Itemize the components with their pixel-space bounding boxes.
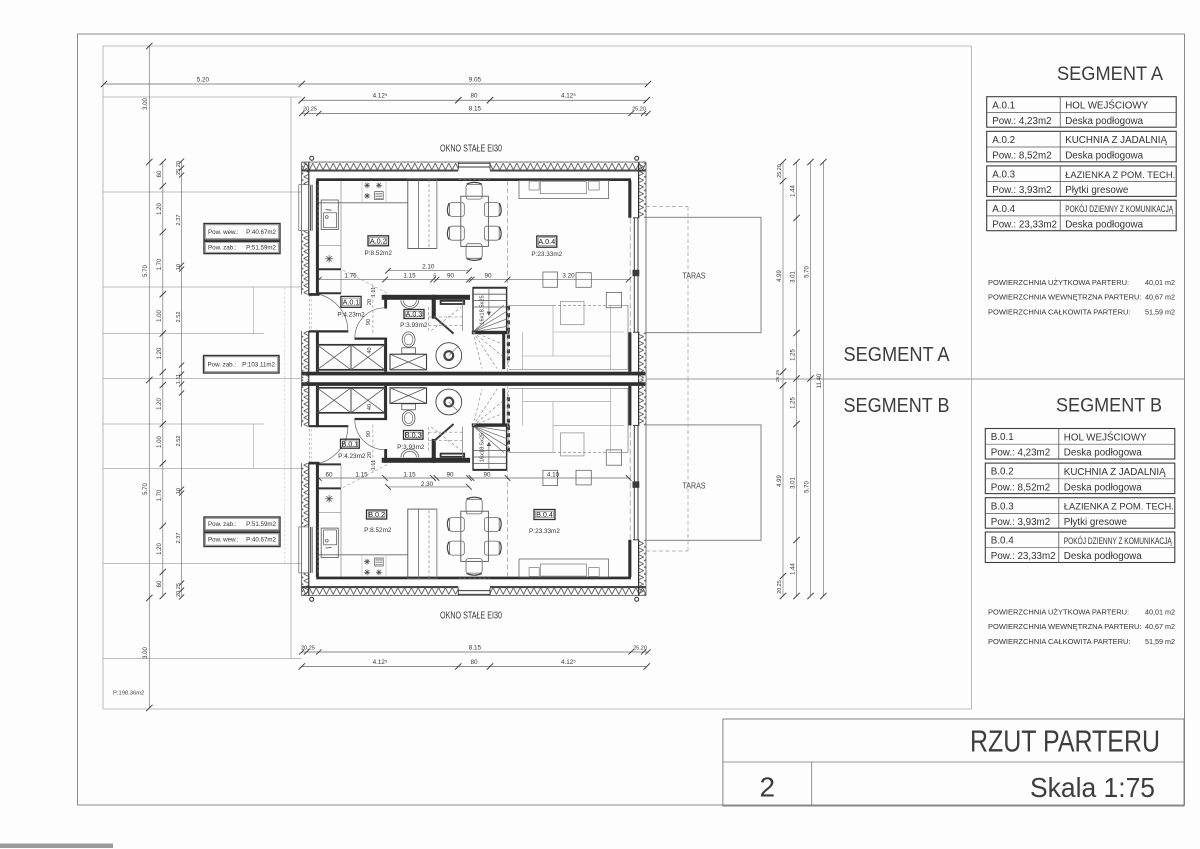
svg-text:40,01 m2: 40,01 m2: [1145, 608, 1175, 617]
svg-text:3.20: 3.20: [562, 272, 575, 279]
svg-text:20,25: 20,25: [303, 106, 317, 112]
svg-text:B.0.3: B.0.3: [991, 501, 1014, 512]
svg-text:ŁAZIENKA Z POM. TECH.: ŁAZIENKA Z POM. TECH.: [1065, 170, 1175, 180]
svg-text:5.70: 5.70: [805, 481, 811, 493]
svg-text:1.70: 1.70: [157, 258, 163, 270]
svg-text:16x18.5x25: 16x18.5x25: [480, 295, 486, 324]
svg-text:1.44: 1.44: [791, 563, 797, 575]
svg-text:B.0.4: B.0.4: [991, 536, 1014, 547]
svg-text:3.00: 3.00: [143, 98, 149, 110]
svg-text:P:51.59m2: P:51.59m2: [246, 521, 276, 528]
svg-text:1.11: 1.11: [176, 374, 182, 384]
svg-text:1.75: 1.75: [344, 272, 357, 279]
svg-text:90: 90: [447, 272, 455, 279]
svg-text:2.10: 2.10: [422, 264, 435, 271]
svg-text:OKNO STAŁE EI30: OKNO STAŁE EI30: [440, 610, 502, 621]
svg-text:51,59 m2: 51,59 m2: [1145, 637, 1175, 646]
svg-text:25,20: 25,20: [777, 164, 783, 178]
svg-text:20,25: 20,25: [301, 645, 315, 651]
svg-text:4.12⁵: 4.12⁵: [373, 93, 388, 100]
svg-text:5.70: 5.70: [143, 483, 149, 495]
svg-text:3.01: 3.01: [791, 477, 797, 489]
svg-text:Deska podłogowa: Deska podłogowa: [1065, 151, 1143, 162]
svg-text:90: 90: [446, 472, 454, 479]
svg-text:Deska podłogowa: Deska podłogowa: [1065, 219, 1143, 230]
svg-text:P:4.23m2: P:4.23m2: [337, 311, 365, 318]
svg-text:KUCHNIA Z JADALNIĄ: KUCHNIA Z JADALNIĄ: [1065, 135, 1167, 146]
svg-text:1.20: 1.20: [157, 347, 163, 359]
svg-text:A.0.1: A.0.1: [992, 100, 1015, 111]
svg-text:1.20: 1.20: [157, 203, 163, 215]
svg-text:P:51.59m2: P:51.59m2: [246, 245, 276, 252]
svg-text:40,67 m2: 40,67 m2: [1145, 622, 1175, 631]
svg-text:2: 2: [760, 772, 776, 803]
svg-text:P:23.33m2: P:23.33m2: [531, 251, 562, 258]
svg-text:Płytki gresowe: Płytki gresowe: [1065, 185, 1129, 196]
svg-text:51,59 m2: 51,59 m2: [1145, 307, 1175, 316]
svg-text:HOL WEJŚCIOWY: HOL WEJŚCIOWY: [1064, 431, 1147, 443]
svg-text:3.00: 3.00: [143, 647, 149, 659]
svg-text:25,20: 25,20: [176, 161, 182, 175]
svg-text:A.0.4: A.0.4: [538, 237, 555, 246]
svg-text:A.0.3: A.0.3: [992, 170, 1015, 181]
svg-text:B.0.4: B.0.4: [536, 510, 553, 519]
svg-text:TARAS: TARAS: [683, 482, 706, 491]
svg-text:2.37: 2.37: [176, 215, 182, 226]
svg-text:B.0.3: B.0.3: [405, 430, 422, 439]
svg-text:11.40: 11.40: [817, 373, 823, 388]
svg-text:Pow.: 8,52m2: Pow.: 8,52m2: [992, 151, 1051, 162]
svg-text:4.99: 4.99: [777, 475, 783, 487]
svg-text:P:3.93m2: P:3.93m2: [397, 444, 425, 451]
svg-text:9.05: 9.05: [469, 76, 482, 83]
svg-text:TARAS: TARAS: [683, 272, 706, 281]
svg-text:4.12⁵: 4.12⁵: [561, 93, 576, 100]
svg-text:P:103.11m2: P:103.11m2: [242, 361, 275, 368]
svg-text:Skala 1:75: Skala 1:75: [1030, 772, 1155, 803]
svg-text:25,25: 25,25: [775, 370, 781, 382]
svg-text:1.15: 1.15: [403, 272, 416, 279]
svg-text:60: 60: [157, 170, 163, 177]
svg-text:A.0.2: A.0.2: [370, 236, 387, 245]
svg-text:Pow.: 4,23m2: Pow.: 4,23m2: [991, 448, 1050, 459]
svg-text:P:198.36m2: P:198.36m2: [113, 691, 144, 697]
svg-text:POWIERZCHNIA CAŁKOWITA PARTERU: POWIERZCHNIA CAŁKOWITA PARTERU:: [988, 307, 1131, 316]
svg-text:Pow.: 8,52m2: Pow.: 8,52m2: [991, 482, 1050, 493]
svg-text:16x18.5x25: 16x18.5x25: [480, 433, 486, 462]
svg-text:2.30: 2.30: [421, 481, 434, 488]
svg-text:P:40.67m2: P:40.67m2: [246, 537, 276, 544]
svg-text:90: 90: [366, 431, 372, 437]
svg-text:OKNO STAŁE EI30: OKNO STAŁE EI30: [440, 144, 502, 155]
svg-text:5: 5: [433, 274, 436, 280]
svg-text:60: 60: [157, 580, 163, 587]
svg-text:P:8.52m2: P:8.52m2: [365, 250, 393, 257]
svg-text:40,01 m2: 40,01 m2: [1145, 278, 1175, 287]
svg-text:40: 40: [367, 404, 373, 410]
svg-text:80: 80: [470, 659, 478, 666]
svg-text:1.25: 1.25: [791, 397, 797, 409]
svg-text:1.20: 1.20: [157, 543, 163, 555]
svg-text:Pow.: 4,23m2: Pow.: 4,23m2: [992, 116, 1051, 127]
svg-text:2.52: 2.52: [176, 312, 182, 323]
svg-text:A.0.2: A.0.2: [992, 135, 1015, 146]
svg-text:2.37: 2.37: [176, 533, 182, 544]
svg-text:1.11: 1.11: [371, 287, 377, 297]
svg-text:20,25: 20,25: [777, 580, 783, 594]
svg-text:HOL WEJŚCIOWY: HOL WEJŚCIOWY: [1065, 100, 1148, 112]
svg-text:Pow. zab.:: Pow. zab.:: [208, 521, 237, 528]
svg-text:P:4.23m2: P:4.23m2: [338, 453, 366, 460]
svg-text:90: 90: [366, 319, 372, 325]
svg-text:1.00: 1.00: [157, 310, 163, 322]
svg-text:25,20: 25,20: [632, 106, 646, 112]
svg-text:P:8.52m2: P:8.52m2: [364, 527, 392, 534]
svg-text:4.99: 4.99: [777, 270, 783, 282]
svg-text:B.0.1: B.0.1: [991, 432, 1014, 443]
svg-text:4.12⁵: 4.12⁵: [561, 659, 576, 666]
svg-text:Pow. zab.:: Pow. zab.:: [208, 245, 237, 252]
svg-text:Pow. wew.:: Pow. wew.:: [208, 537, 239, 544]
svg-text:ŁAZIENKA Z POM. TECH.: ŁAZIENKA Z POM. TECH.: [1064, 502, 1174, 512]
svg-text:POKÓJ DZIENNY Z KOMUNIKACJĄ: POKÓJ DZIENNY Z KOMUNIKACJĄ: [1065, 204, 1174, 214]
svg-text:8.15: 8.15: [469, 644, 482, 651]
svg-text:B.0.1: B.0.1: [342, 439, 359, 448]
svg-text:Pow. wew.:: Pow. wew.:: [208, 229, 239, 236]
svg-text:25,20: 25,20: [633, 645, 647, 651]
svg-text:1.20: 1.20: [157, 398, 163, 410]
svg-text:A.0.1: A.0.1: [343, 297, 360, 306]
svg-text:SEGMENT B: SEGMENT B: [1056, 395, 1162, 417]
svg-text:1.70: 1.70: [157, 489, 163, 501]
svg-text:10: 10: [176, 264, 182, 270]
svg-text:20: 20: [367, 452, 373, 458]
svg-text:80: 80: [470, 93, 478, 100]
svg-text:RZUT PARTERU: RZUT PARTERU: [970, 724, 1160, 759]
svg-text:4.12⁵: 4.12⁵: [373, 659, 388, 666]
svg-text:5.70: 5.70: [143, 265, 149, 277]
svg-text:60: 60: [325, 472, 333, 479]
svg-text:Deska podłogowa: Deska podłogowa: [1064, 482, 1142, 493]
svg-text:P:23.33m2: P:23.33m2: [529, 528, 560, 535]
svg-text:8.15: 8.15: [469, 105, 482, 112]
svg-text:2.52: 2.52: [176, 436, 182, 447]
svg-text:POWIERZCHNIA UŻYTKOWA PARTERU:: POWIERZCHNIA UŻYTKOWA PARTERU:: [988, 608, 1129, 617]
svg-text:1.25: 1.25: [791, 349, 797, 361]
svg-text:90: 90: [483, 472, 491, 479]
svg-text:KUCHNIA Z JADALNIĄ: KUCHNIA Z JADALNIĄ: [1064, 467, 1166, 478]
svg-text:10: 10: [176, 488, 182, 494]
svg-text:SEGMENT A: SEGMENT A: [1057, 63, 1163, 85]
svg-text:90: 90: [484, 272, 492, 279]
svg-text:POWIERZCHNIA WEWNĘTRZNA PARTER: POWIERZCHNIA WEWNĘTRZNA PARTERU:: [988, 622, 1141, 631]
svg-text:1.15: 1.15: [355, 472, 368, 479]
svg-text:20,25: 20,25: [176, 583, 182, 597]
svg-text:3.01: 3.01: [791, 271, 797, 283]
svg-text:Deska podłogowa: Deska podłogowa: [1065, 116, 1143, 127]
svg-text:1.11: 1.11: [371, 460, 377, 470]
svg-text:B.0.2: B.0.2: [991, 467, 1014, 478]
svg-text:POWIERZCHNIA UŻYTKOWA PARTERU:: POWIERZCHNIA UŻYTKOWA PARTERU:: [988, 278, 1129, 287]
svg-text:5.20: 5.20: [197, 76, 210, 83]
svg-text:Deska podłogowa: Deska podłogowa: [1064, 551, 1142, 562]
svg-text:1.15: 1.15: [403, 472, 416, 479]
svg-text:B.0.2: B.0.2: [368, 510, 385, 519]
svg-text:POWIERZCHNIA CAŁKOWITA PARTERU: POWIERZCHNIA CAŁKOWITA PARTERU:: [988, 637, 1131, 646]
svg-text:P:3.93m2: P:3.93m2: [400, 322, 428, 329]
svg-text:Pow.: 3,93m2: Pow.: 3,93m2: [991, 517, 1050, 528]
svg-text:1.44: 1.44: [791, 185, 797, 197]
svg-text:A.0.4: A.0.4: [992, 204, 1015, 215]
svg-text:40: 40: [367, 347, 373, 353]
svg-text:POWIERZCHNIA WEWNĘTRZNA PARTER: POWIERZCHNIA WEWNĘTRZNA PARTERU:: [988, 293, 1141, 302]
svg-text:Płytki gresowe: Płytki gresowe: [1064, 517, 1128, 528]
svg-text:A.0.3: A.0.3: [406, 310, 423, 319]
svg-text:Pow.: 3,93m2: Pow.: 3,93m2: [992, 185, 1051, 196]
svg-text:SEGMENT B: SEGMENT B: [844, 394, 950, 417]
svg-text:Pow.: 23,33m2: Pow.: 23,33m2: [992, 219, 1057, 230]
svg-text:POKÓJ DZIENNY Z KOMUNIKACJĄ: POKÓJ DZIENNY Z KOMUNIKACJĄ: [1064, 536, 1173, 546]
svg-text:P:40.67m2: P:40.67m2: [246, 229, 276, 236]
svg-text:1.00: 1.00: [157, 436, 163, 448]
svg-text:40,67 m2: 40,67 m2: [1145, 293, 1175, 302]
svg-text:SEGMENT A: SEGMENT A: [844, 343, 950, 366]
svg-text:5.70: 5.70: [805, 266, 811, 278]
svg-text:Pow. zab.:: Pow. zab.:: [208, 361, 237, 368]
svg-text:20: 20: [367, 299, 373, 305]
svg-text:Deska podłogowa: Deska podłogowa: [1064, 448, 1142, 459]
svg-text:Pow.: 23,33m2: Pow.: 23,33m2: [991, 551, 1056, 562]
svg-text:4.10: 4.10: [547, 472, 560, 479]
